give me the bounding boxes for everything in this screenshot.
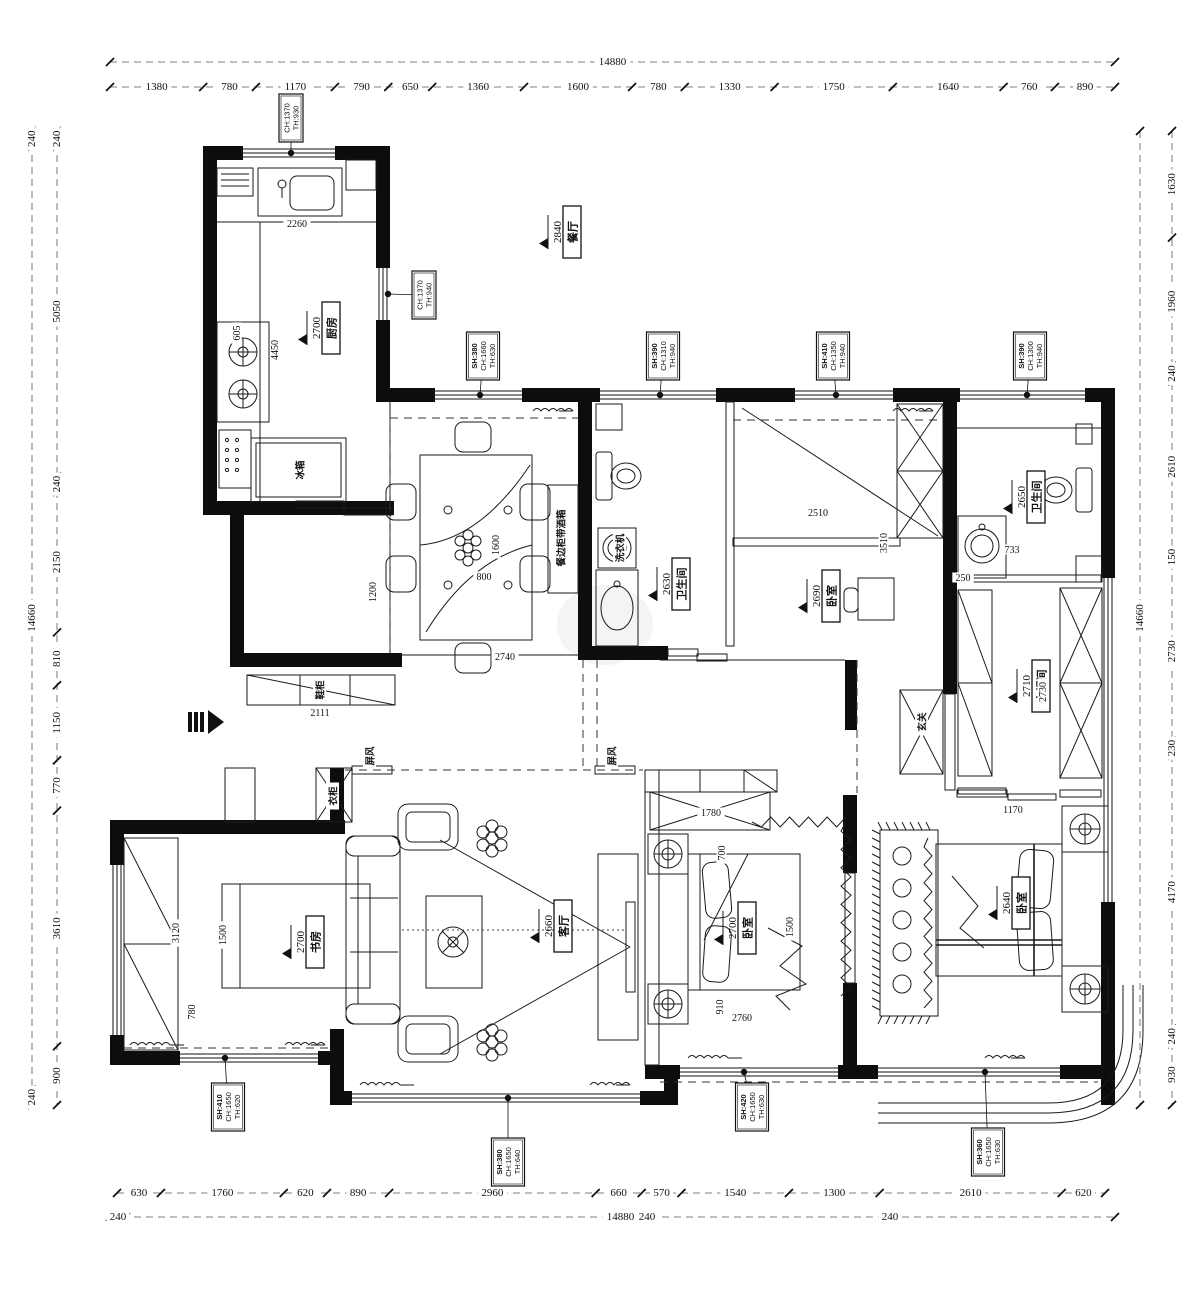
dim-value: 1760: [211, 1187, 234, 1199]
dim-value: 800: [477, 572, 492, 583]
window-label-6: [222, 1055, 228, 1061]
room-name: 书房: [309, 931, 323, 953]
area-label-text: 洗衣机: [615, 533, 627, 562]
window-spec-line: CH:1650: [504, 1147, 513, 1177]
area-label-6: 餐边柜带酒箱: [554, 504, 568, 573]
window-spec-line: CH:1660: [479, 341, 488, 371]
room-name: 卧室: [825, 585, 839, 607]
window-label-6: SH:410CH:1650TH:620: [212, 1083, 245, 1131]
window-right-wall: [1101, 578, 1115, 902]
ceiling-height: 2700: [295, 931, 307, 954]
dim-chain-right-outer: 230: [1166, 737, 1178, 760]
window-spec-line: SH:380: [470, 343, 479, 368]
dim-value: 240: [1166, 1028, 1178, 1045]
area-label-text: 衣柜: [328, 786, 340, 806]
window-study-left: [110, 865, 124, 1035]
dim-value: 2610: [960, 1187, 983, 1199]
window-living-bottom: [352, 1091, 640, 1105]
ceiling-height: 2660: [543, 915, 555, 938]
window-label-7: [505, 1095, 511, 1101]
dim-value: 1540: [724, 1187, 747, 1199]
dim-value: 770: [51, 777, 63, 794]
dim-value: 760: [1021, 81, 1038, 93]
walls: [843, 983, 857, 1079]
dim-chain-right-outer: 240: [1166, 1025, 1178, 1048]
dim-value: 810: [51, 650, 63, 667]
dim-chain-left-inner: 5050: [51, 297, 63, 327]
dim-value: 780: [187, 1005, 198, 1020]
dim-value: 1300: [823, 1187, 846, 1199]
walls: [578, 646, 668, 660]
dim-chain-right-inner: 14660: [1134, 600, 1146, 636]
window-label-8: SH:420CH:1650TH:630: [736, 1083, 769, 1131]
walls: [664, 1079, 678, 1105]
dim-value: 1360: [467, 81, 490, 93]
interior-dim-16: 1500: [785, 913, 797, 940]
dim-value: 240: [1166, 365, 1178, 382]
window-spec-line: TH:940: [668, 344, 677, 369]
window-spec-line: TH:630: [488, 344, 497, 369]
dim-chain-right-outer: 2730: [1166, 637, 1178, 667]
dim-value: 4450: [270, 340, 281, 360]
walls: [843, 795, 857, 873]
dim-value: 240: [882, 1211, 899, 1223]
window-spec-line: CH:1370: [416, 280, 425, 310]
dim-value: 1640: [937, 81, 960, 93]
room-name: 卫生间: [675, 568, 689, 601]
dim-value: 230: [1166, 739, 1178, 756]
area-label-3: 衣柜: [326, 783, 340, 810]
dim-value: 2730: [1166, 640, 1178, 663]
dim-chain-left-outer: 240: [26, 127, 38, 150]
dim-chain-left-inner: 240: [51, 473, 63, 496]
dim-chain-right-outer: 1630: [1166, 170, 1178, 200]
window-label-5: SH:390CH:1300TH:940: [1014, 332, 1047, 380]
window-spec-line: TH:940: [425, 283, 434, 308]
dim-value: 890: [350, 1187, 367, 1199]
dim-value: 700: [717, 846, 728, 861]
area-label-text: 冰箱: [295, 460, 307, 480]
dim-value: 605: [232, 326, 243, 341]
walls: [230, 515, 244, 667]
window-spec-line: TH:620: [233, 1095, 242, 1120]
window-label-7: SH:380CH:1650TH:640: [492, 1138, 525, 1186]
dim-value: 1170: [1003, 805, 1023, 816]
area-label-4: 冰箱: [293, 457, 307, 484]
dim-chain-right-outer: 930: [1166, 1063, 1178, 1086]
room-name: 卧室: [741, 917, 755, 939]
dim-value: 1500: [218, 925, 229, 945]
dim-value: 780: [221, 81, 238, 93]
dim-chain-left-outer: 240: [26, 1086, 38, 1109]
window-label-9: SH:360CH:1650TH:630: [972, 1128, 1005, 1176]
dim-value: 890: [1077, 81, 1094, 93]
area-label-0: 玄关: [915, 709, 929, 736]
dim-value: 3610: [51, 917, 63, 940]
dim-chain-left-outer: 14660: [26, 600, 38, 636]
floor-plan-canvas: 1488013807801170790650136016007801330175…: [0, 0, 1200, 1313]
dim-value: 5050: [51, 300, 63, 323]
window-label-1: CH:1370TH:940: [412, 271, 436, 319]
area-label-text: 屏风: [366, 746, 377, 766]
window-spec-line: SH:360: [975, 1139, 984, 1164]
dim-value: 570: [653, 1187, 670, 1199]
dim-value: 250: [956, 573, 971, 584]
room-name: 客厅: [557, 915, 571, 938]
dim-value: 2111: [310, 708, 329, 719]
window-spec-line: CH:1650: [748, 1092, 757, 1122]
dim-value: 150: [1166, 548, 1178, 565]
dim-chain-left-inner: 770: [51, 774, 63, 797]
window-study-bottom: [180, 1051, 318, 1065]
ceiling-height: 2710: [1021, 675, 1033, 698]
dim-value: 1600: [567, 81, 590, 93]
dim-value: 1780: [701, 808, 721, 819]
dim-value: 2730: [1038, 682, 1049, 702]
floor-plan-page: 1488013807801170790650136016007801330175…: [0, 0, 1200, 1313]
interior-dim-9: 3510: [879, 529, 891, 556]
dim-value: 240: [110, 1211, 127, 1223]
window-spec-line: TH:640: [513, 1150, 522, 1175]
window-spec-line: CH:1370: [283, 103, 292, 133]
dim-chain-left-inner: 3610: [51, 914, 63, 944]
dim-value: 14880: [607, 1211, 635, 1223]
window-label-2: [477, 392, 483, 398]
dim-value: 930: [1166, 1066, 1178, 1083]
interior-dim-3: 1200: [368, 578, 380, 605]
section-pointer: [200, 712, 204, 732]
window-spec-line: CH:1650: [984, 1137, 993, 1167]
dim-value: 910: [715, 1000, 726, 1015]
dim-value: 240: [51, 475, 63, 492]
ceiling-height: 2700: [727, 917, 739, 940]
dim-value: 2960: [481, 1187, 504, 1199]
window-label-3: SH:390CH:1310TH:940: [647, 332, 680, 380]
dim-value: 2610: [1166, 455, 1178, 478]
window-label-2: SH:380CH:1660TH:630: [467, 332, 500, 380]
dim-chain-right-outer: 2610: [1166, 452, 1178, 482]
window-spec-line: TH:630: [757, 1095, 766, 1120]
window-label-9: [982, 1069, 988, 1075]
window-label-5: [1024, 392, 1030, 398]
ceiling-height: 2640: [1001, 892, 1013, 915]
dim-chain-right-outer: 240: [1166, 362, 1178, 385]
window-spec-line: TH:930: [292, 106, 301, 131]
area-label-7: 鞋柜: [313, 677, 327, 704]
window-spec-line: SH:410: [215, 1094, 224, 1119]
dim-value: 1170: [285, 81, 307, 93]
interior-dim-17: 910: [715, 996, 727, 1017]
dim-chain-left-inner: 2150: [51, 547, 63, 577]
dim-chain-left-inner: 900: [51, 1064, 63, 1087]
dim-chain-left-inner: 240: [51, 127, 63, 150]
dim-value: 1500: [785, 917, 796, 937]
dim-value: 240: [26, 1089, 38, 1106]
room-name: 卧室: [1015, 892, 1029, 914]
dim-value: 3120: [171, 923, 182, 943]
dim-value: 660: [610, 1187, 627, 1199]
dim-value: 1330: [719, 81, 742, 93]
ceiling-height: 2840: [552, 221, 564, 244]
dim-value: 14880: [599, 56, 627, 68]
walls: [230, 653, 402, 667]
interior-dim-4: 1600: [491, 531, 503, 558]
area-label-1: 屏风: [363, 743, 377, 770]
area-label-text: 鞋柜: [315, 680, 327, 700]
dim-value: 620: [297, 1187, 314, 1199]
dim-value: 2260: [287, 219, 307, 230]
dim-chain-right-outer: 1960: [1166, 287, 1178, 317]
dim-value: 1750: [823, 81, 846, 93]
window-spec-line: SH:420: [739, 1094, 748, 1119]
dim-value: 790: [353, 81, 370, 93]
interior-dim-2: 4450: [270, 336, 282, 363]
interior-dim-15: 700: [717, 842, 729, 863]
dim-value: 1960: [1166, 290, 1178, 313]
dim-value: 1200: [368, 582, 379, 602]
window-band-3: [795, 388, 893, 402]
window-spec-line: SH:390: [650, 343, 659, 368]
window-spec-line: CH:1650: [224, 1092, 233, 1122]
window-label-3: [657, 392, 663, 398]
window-label-8: [741, 1069, 747, 1075]
ceiling-height: 2690: [811, 585, 823, 608]
window-label-1: [385, 291, 391, 297]
interior-dim-1: 605: [232, 322, 244, 343]
dim-value: 733: [1005, 545, 1020, 556]
dim-value: 2510: [808, 508, 828, 519]
dim-value: 1630: [1166, 173, 1178, 196]
window-band-4: [960, 388, 1085, 402]
dim-value: 4170: [1166, 881, 1178, 904]
interior-dim-19: 3120: [171, 919, 183, 946]
window-label-4: [833, 392, 839, 398]
area-label-text: 屏风: [608, 746, 619, 766]
interior-dim-21: 780: [187, 1001, 199, 1022]
window-label-0: [288, 150, 294, 156]
interior-dim-12: 2730: [1038, 678, 1050, 705]
walls: [203, 146, 217, 515]
dim-chain-right-outer: 4170: [1166, 877, 1178, 907]
window-spec-line: SH:380: [495, 1149, 504, 1174]
dim-chain-left-inner: 1150: [51, 708, 63, 738]
area-label-2: 屏风: [605, 743, 619, 770]
dim-value: 240: [51, 130, 63, 147]
ceiling-height: 2630: [661, 573, 673, 596]
walls: [943, 402, 957, 694]
dim-value: 1600: [491, 535, 502, 555]
section-pointer: [194, 712, 198, 732]
dim-value: 2740: [495, 652, 515, 663]
dim-value: 240: [26, 130, 38, 147]
dim-chain-left-inner: 810: [51, 647, 63, 670]
ceiling-height: 2700: [311, 317, 323, 340]
window-spec-line: SH:410: [820, 343, 829, 368]
window-spec-line: SH:390: [1017, 343, 1026, 368]
interior-dim-20: 1500: [218, 921, 230, 948]
section-pointer: [188, 712, 192, 732]
ceiling-height: 2650: [1016, 486, 1028, 509]
area-label-text: 餐边柜带酒箱: [556, 509, 568, 568]
dim-chain-right-outer: 150: [1166, 546, 1178, 569]
window-bedroom-center-bottom: [680, 1065, 838, 1079]
window-label-4: SH:410CH:1350TH:940: [817, 332, 850, 380]
dim-value: 900: [51, 1067, 63, 1084]
dim-value: 1150: [51, 711, 63, 733]
dim-value: 2150: [51, 551, 63, 574]
dim-value: 2760: [732, 1013, 752, 1024]
walls: [845, 660, 857, 730]
window-spec-line: CH:1350: [829, 341, 838, 371]
area-label-5: 洗衣机: [613, 529, 627, 567]
dim-value: 780: [650, 81, 667, 93]
window-spec-line: TH:630: [993, 1140, 1002, 1165]
window-spec-line: CH:1310: [659, 341, 668, 371]
window-spec-line: CH:1300: [1026, 341, 1035, 371]
dim-value: 3510: [879, 533, 890, 553]
dim-value: 630: [131, 1187, 148, 1199]
dim-value: 1380: [146, 81, 169, 93]
window-bedroom-right-bottom: [878, 1065, 1060, 1079]
dim-value: 650: [402, 81, 419, 93]
room-name: 餐厅: [566, 221, 580, 244]
dim-value: 620: [1075, 1187, 1092, 1199]
dim-value: 14660: [1134, 604, 1146, 632]
window-spec-line: TH:940: [838, 344, 847, 369]
dim-value: 14660: [26, 604, 38, 632]
window-spec-line: TH:940: [1035, 344, 1044, 369]
room-name: 厨房: [325, 317, 339, 339]
window-label-0: CH:1370TH:930: [279, 94, 303, 142]
room-name: 卫生间: [1030, 481, 1044, 514]
area-label-text: 玄关: [917, 712, 929, 732]
dim-value: 240: [639, 1211, 656, 1223]
walls: [578, 402, 592, 660]
